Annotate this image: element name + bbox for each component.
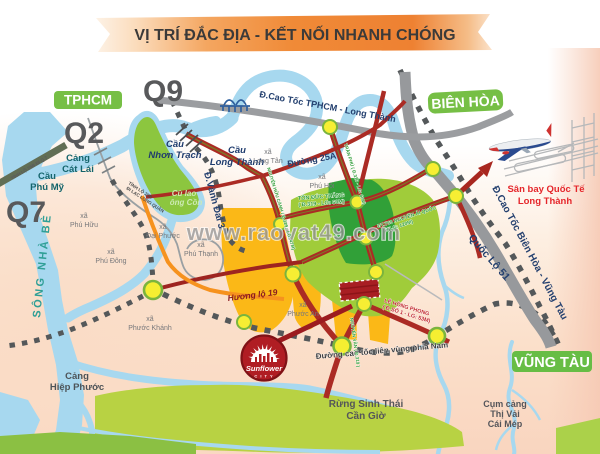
svg-text:Phước Khánh: Phước Khánh bbox=[128, 325, 172, 332]
svg-text:Cái Mép: Cái Mép bbox=[488, 419, 523, 429]
svg-text:Cầu: Cầu bbox=[38, 171, 56, 182]
svg-text:xã: xã bbox=[264, 149, 272, 156]
svg-text:Phú Mỹ: Phú Mỹ bbox=[30, 182, 64, 193]
svg-text:Thị Vải: Thị Vải bbox=[490, 409, 520, 419]
svg-text:Cầu: Cầu bbox=[166, 139, 184, 150]
svg-text:TPHCM: TPHCM bbox=[64, 93, 112, 108]
svg-text:Hiệp Phước: Hiệp Phước bbox=[50, 382, 104, 393]
svg-text:Long Thành: Long Thành bbox=[518, 196, 573, 207]
svg-text:Cụm cảng: Cụm cảng bbox=[483, 399, 527, 409]
svg-text:C I T Y: C I T Y bbox=[254, 374, 273, 379]
svg-text:Cát Lái: Cát Lái bbox=[62, 164, 94, 175]
svg-text:Cần Giờ: Cần Giờ bbox=[346, 410, 386, 422]
svg-text:VỊ TRÍ ĐẮC ĐỊA - KẾT NỐI NHANH: VỊ TRÍ ĐẮC ĐỊA - KẾT NỐI NHANH CHÓNG bbox=[134, 24, 455, 44]
svg-text:Phú Thạnh: Phú Thạnh bbox=[184, 251, 218, 258]
svg-text:Cảng: Cảng bbox=[66, 153, 90, 164]
svg-text:Rừng Sinh Thái: Rừng Sinh Thái bbox=[329, 399, 404, 410]
svg-text:Sunflower: Sunflower bbox=[246, 364, 283, 373]
svg-text:Phú Hội: Phú Hội bbox=[310, 183, 335, 190]
svg-text:VŨNG TÀU: VŨNG TÀU bbox=[514, 353, 590, 371]
svg-text:BIÊN HÒA: BIÊN HÒA bbox=[431, 91, 500, 112]
svg-text:Phước An: Phước An bbox=[287, 311, 319, 318]
svg-text:Đại Phước: Đại Phước bbox=[146, 233, 180, 240]
svg-text:xã: xã bbox=[107, 249, 115, 256]
svg-text:Phú Đông: Phú Đông bbox=[95, 258, 126, 265]
svg-text:xã: xã bbox=[299, 302, 307, 309]
svg-text:xã: xã bbox=[80, 213, 88, 220]
svg-text:xã: xã bbox=[318, 174, 326, 181]
svg-text:Sân bay Quốc Tế: Sân bay Quốc Tế bbox=[507, 184, 585, 195]
svg-text:xã: xã bbox=[197, 242, 205, 249]
svg-text:xã: xã bbox=[146, 316, 154, 323]
svg-text:ông Cồn: ông Cồn bbox=[170, 198, 203, 207]
svg-text:Nhơn Trạch: Nhơn Trạch bbox=[148, 150, 201, 161]
svg-text:Long Tân: Long Tân bbox=[253, 158, 283, 165]
svg-text:Q9: Q9 bbox=[143, 75, 183, 108]
svg-text:Phú Hữu: Phú Hữu bbox=[70, 222, 98, 229]
svg-text:Q2: Q2 bbox=[64, 117, 104, 150]
svg-text:Cầu: Cầu bbox=[228, 145, 246, 156]
svg-text:xã: xã bbox=[159, 224, 167, 231]
svg-text:Cảng: Cảng bbox=[65, 371, 89, 382]
svg-text:Cù lao: Cù lao bbox=[172, 189, 197, 198]
